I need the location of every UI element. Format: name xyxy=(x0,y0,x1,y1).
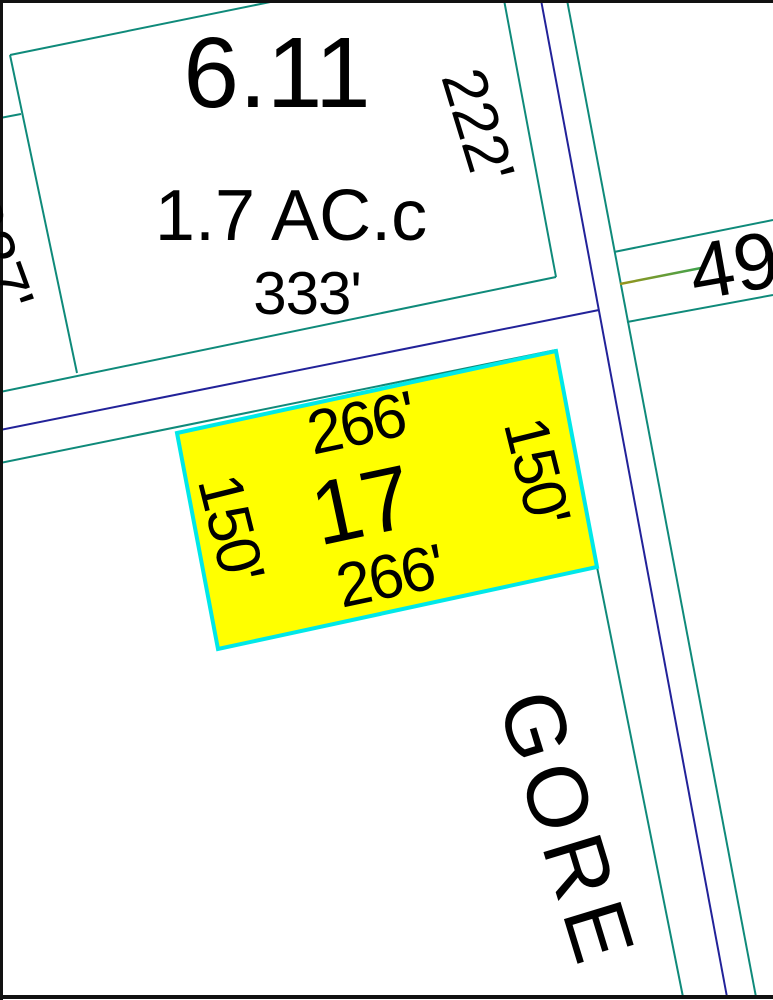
parcel-611-dim-bottom-label: 333' xyxy=(253,264,361,324)
tax-map-canvas: 6.11 1.7 AC.c 333' 222' 337' 266' 17 266… xyxy=(0,0,773,1000)
map-border-bottom xyxy=(0,995,773,999)
map-border-top xyxy=(0,0,773,3)
parcel-611-left-edge-line xyxy=(10,55,77,373)
parcel-611-id-label: 6.11 xyxy=(183,23,370,123)
sliver-parcel-top-edge-line xyxy=(0,114,21,118)
route-number-label: 49 xyxy=(683,219,773,313)
map-border-left xyxy=(0,0,3,1000)
parcel-611-area-label: 1.7 AC.c xyxy=(155,180,427,252)
